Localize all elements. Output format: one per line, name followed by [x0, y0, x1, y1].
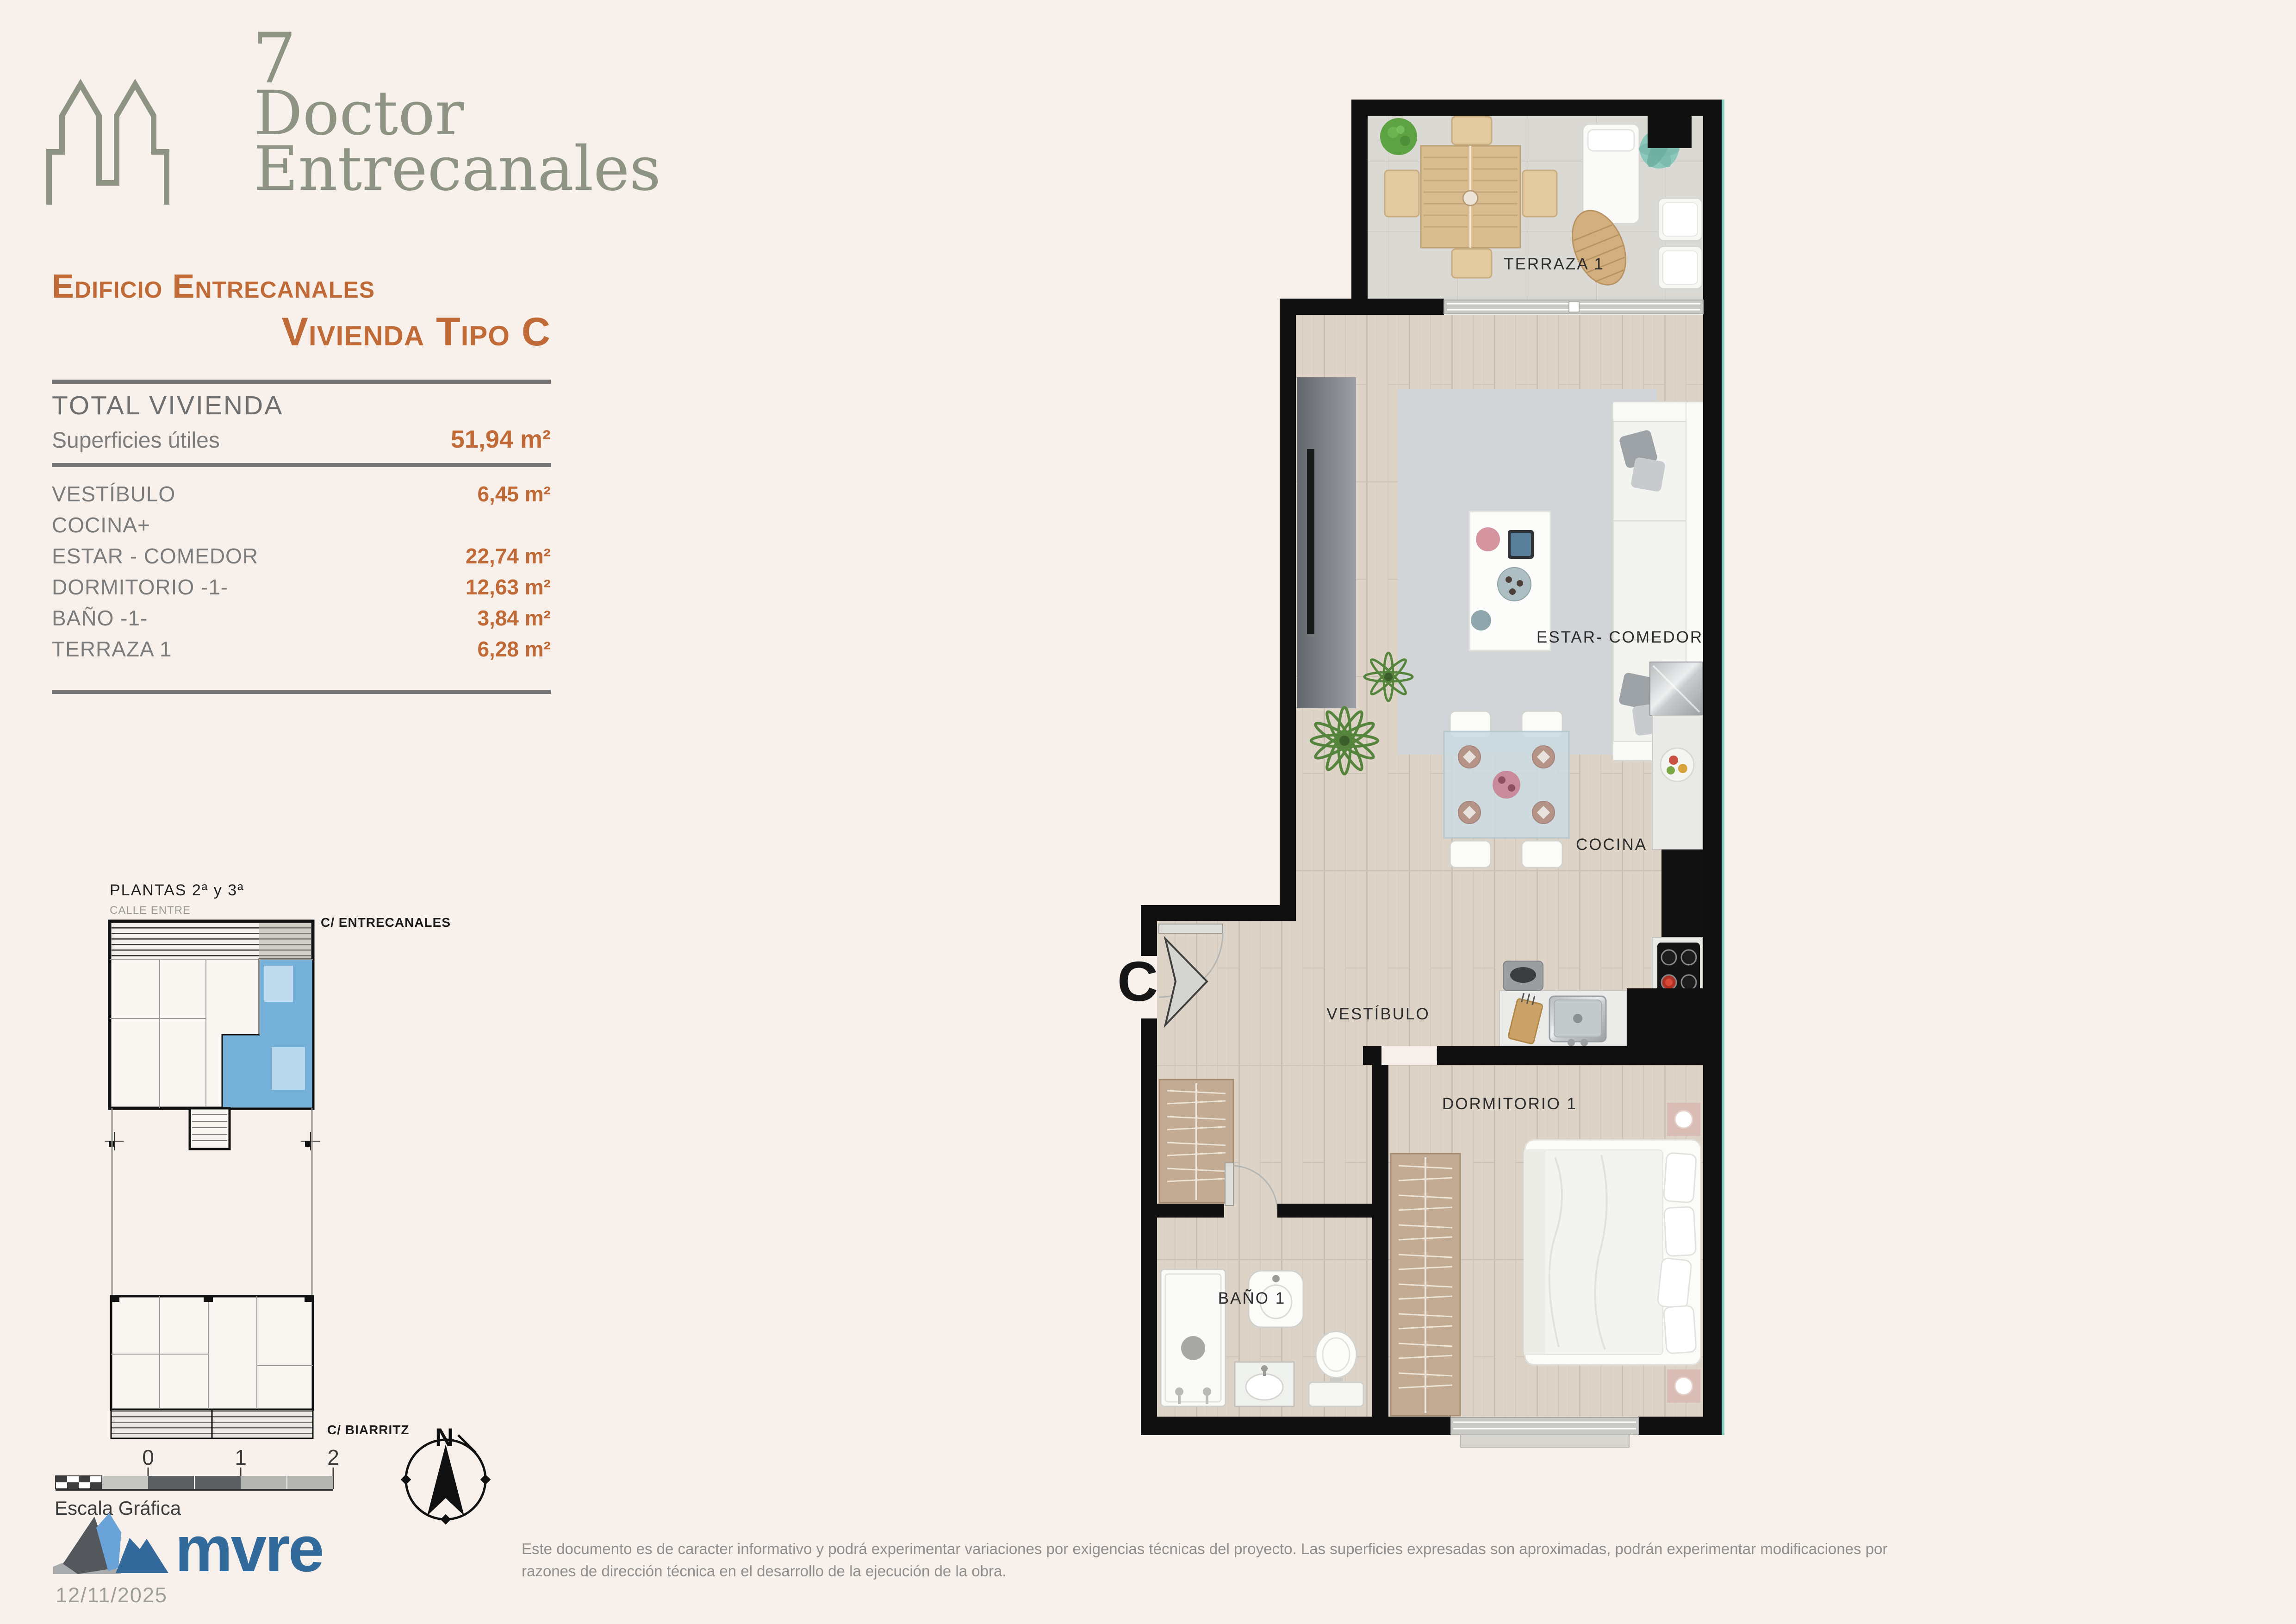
scale-tick-0: 0	[142, 1445, 154, 1469]
north-compass-icon: N	[397, 1425, 504, 1531]
terrace-lounger	[1583, 124, 1639, 224]
coffee-maker	[1503, 961, 1543, 991]
mvre-wordmark: mvre	[175, 1512, 323, 1585]
total-vivienda-label: TOTAL VIVIENDA	[52, 390, 283, 421]
room-value: 6,45 m²	[477, 481, 551, 506]
bed	[1524, 1140, 1701, 1365]
kitchen-counter	[1652, 715, 1702, 849]
bathroom-sink	[1235, 1362, 1294, 1406]
bedroom-window	[1451, 1418, 1638, 1447]
plan-sheet: 7 Doctor Entrecanales Edificio Entrecana…	[0, 0, 2296, 1624]
table-flowers	[1493, 771, 1520, 799]
label-cocina: COCINA	[1576, 836, 1647, 854]
room-row: DORMITORIO -1- 12,63 m²	[52, 575, 551, 606]
room-value: 3,84 m²	[477, 606, 551, 631]
mountain-blue	[116, 1538, 168, 1573]
label-dormitorio: DORMITORIO 1	[1442, 1095, 1577, 1113]
street-label-top: CALLE ENTRE	[110, 904, 191, 917]
terrace-dining-table	[1421, 146, 1520, 248]
mvre-logo: mvre	[51, 1512, 338, 1586]
room-label: COCINA+	[52, 512, 150, 537]
scale-checker	[56, 1476, 102, 1489]
room-row: VESTÍBULO 6,45 m²	[52, 481, 551, 512]
upper-building-block	[110, 921, 313, 1149]
divider-rule	[52, 380, 551, 384]
lower-building-block	[111, 1296, 313, 1438]
shower	[1161, 1269, 1226, 1406]
room-label: VESTÍBULO	[52, 481, 175, 506]
room-label: TERRAZA 1	[52, 637, 172, 662]
site-plan-title: PLANTAS 2ª y 3ª	[110, 881, 244, 899]
entry-letter: C	[1117, 950, 1158, 1013]
label-estar-comedor: ESTAR- COMEDOR	[1537, 628, 1703, 646]
hall-wardrobe	[1159, 1080, 1233, 1203]
bedroom-wardrobe	[1391, 1154, 1460, 1416]
label-bano: BAÑO 1	[1218, 1289, 1286, 1307]
room-row: ESTAR - COMEDOR 22,74 m²	[52, 543, 551, 575]
room-label: ESTAR - COMEDOR	[52, 543, 258, 568]
room-label: BAÑO -1-	[52, 606, 148, 631]
street-label-right: C/ ENTRECANALES	[321, 915, 451, 930]
room-row: TERRAZA 1 6,28 m²	[52, 637, 551, 668]
fruit-bowl	[1661, 748, 1694, 781]
room-label: DORMITORIO -1-	[52, 575, 228, 600]
room-row: BAÑO -1- 3,84 m²	[52, 606, 551, 637]
terrace-plant	[1380, 118, 1417, 155]
disclaimer-line2: razones de dirección técnica en el desar…	[522, 1562, 1006, 1580]
label-terraza: TERRAZA 1	[1504, 255, 1605, 273]
room-value: 12,63 m²	[466, 575, 551, 600]
scale-tick-2: 2	[327, 1445, 339, 1469]
dining-table	[1444, 731, 1569, 838]
page-title-line2: Vivienda Tipo C	[52, 309, 551, 355]
surface-subtitle: Superficies útiles	[52, 428, 220, 453]
divider-rule	[52, 463, 551, 467]
room-row: COCINA+	[52, 512, 551, 543]
scale-tick-1: 1	[235, 1445, 247, 1469]
surface-total-row: Superficies útiles 51,94 m²	[52, 425, 551, 454]
divider-rule	[52, 690, 551, 694]
tv-unit	[1297, 377, 1356, 708]
date-stamp: 12/11/2025	[56, 1583, 168, 1607]
compass-n-label: N	[435, 1425, 454, 1452]
label-vestibulo: VESTÍBULO	[1326, 1005, 1430, 1023]
floor-plan: C TERRAZA 1 ESTAR- COMEDOR COCINA VESTÍB…	[1111, 93, 1731, 1449]
facade-glass-line	[1722, 100, 1724, 1435]
site-key-plan: PLANTAS 2ª y 3ª CALLE ENTRE	[100, 875, 479, 1458]
fridge	[1650, 662, 1702, 715]
brand-name-line2: Entrecanales	[254, 133, 661, 205]
page-title-line1: Edificio Entrecanales	[52, 268, 551, 306]
terrace-glass-door	[1444, 300, 1703, 314]
graphic-scale: 0 1 2 Escala Gráfica	[46, 1444, 370, 1523]
room-value: 6,28 m²	[477, 637, 551, 662]
room-value: 22,74 m²	[466, 543, 551, 568]
disclaimer-line1: Este documento es de caracter informativ…	[522, 1540, 1887, 1557]
surface-total-value: 51,94 m²	[451, 425, 551, 454]
towers-logo-icon	[43, 61, 205, 209]
disclaimer-text: Este documento es de caracter informativ…	[522, 1538, 2229, 1582]
